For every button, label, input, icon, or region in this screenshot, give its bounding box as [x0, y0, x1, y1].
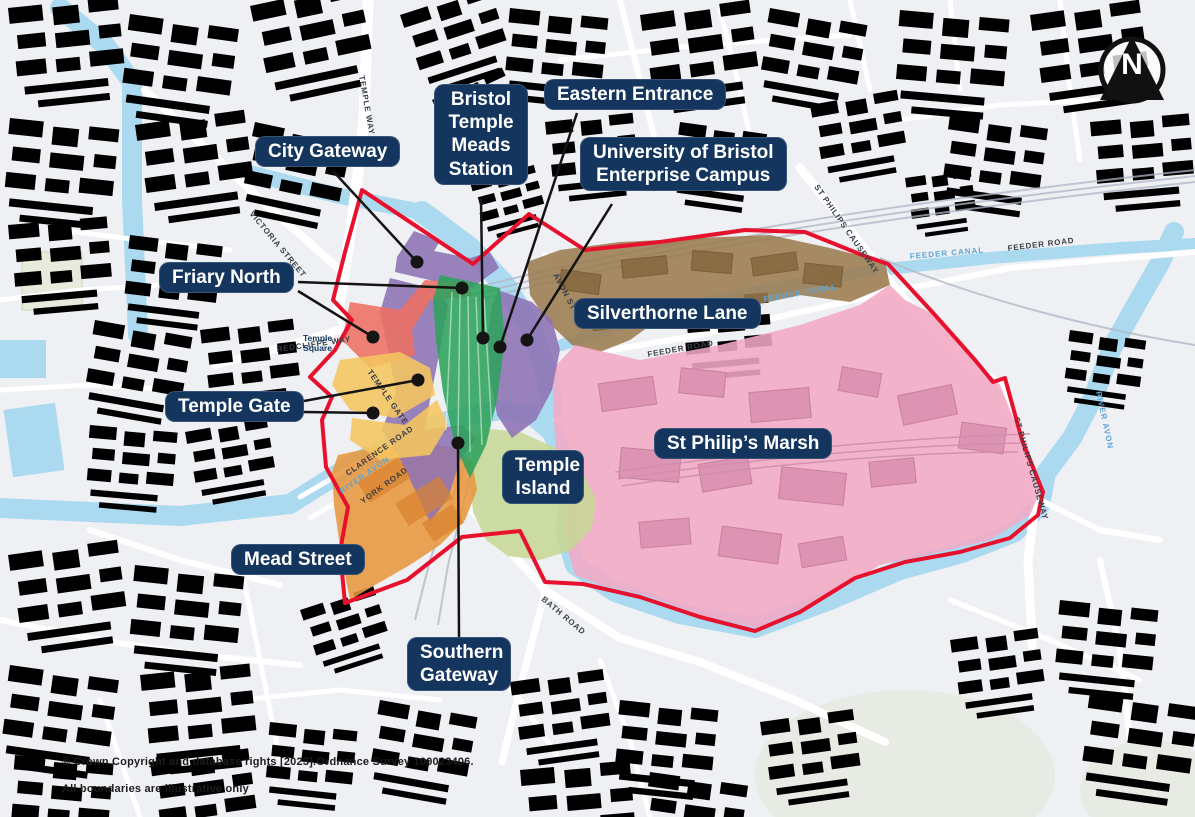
zone-label-temple-island: Temple Island: [502, 450, 584, 504]
map-canvas: VICTORIA STREET TEMPLE WAY REDCLIFFE WAY…: [0, 0, 1195, 817]
copyright-text: © Crown Copyright and database rights [2…: [62, 756, 474, 768]
zone-label-st-philips-marsh: St Philip’s Marsh: [654, 428, 832, 459]
zone-label-mead-street: Mead Street: [231, 544, 365, 575]
zone-label-eastern-entrance: Eastern Entrance: [544, 79, 726, 110]
zone-label-city-gateway: City Gateway: [255, 136, 400, 167]
zone-label-temple-gate: Temple Gate: [165, 391, 304, 422]
zone-label-silverthorne-lane: Silverthorne Lane: [574, 298, 761, 329]
map-label-temple-square: Temple Square: [303, 334, 332, 354]
compass-north-letter: N: [1096, 48, 1168, 82]
zone-label-friary-north: Friary North: [159, 262, 294, 293]
zone-label-bristol-temple-meads-station: Bristol Temple Meads Station: [434, 84, 528, 185]
north-arrow-compass: N: [1096, 34, 1168, 106]
zone-label-university-enterprise-campus: University of Bristol Enterprise Campus: [580, 137, 787, 191]
disclaimer-text: All boundaries are illustrative only: [62, 783, 249, 795]
zone-label-southern-gateway: Southern Gateway: [407, 637, 511, 691]
